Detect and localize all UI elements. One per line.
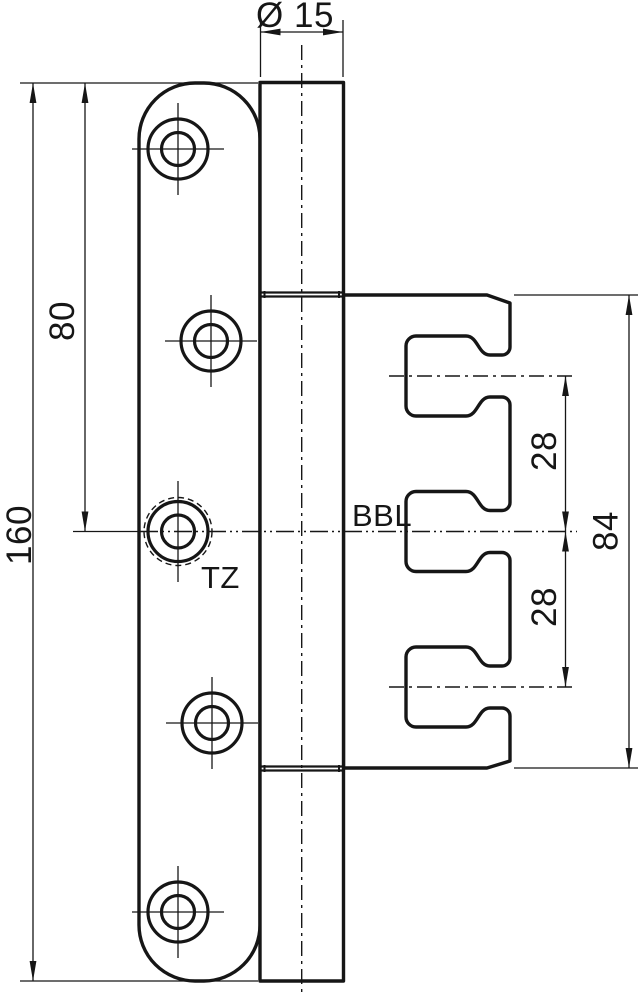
arrowhead-down [30, 961, 37, 981]
hinge-technical-drawing: Ø 15 160 80 28 28 84 [0, 0, 641, 1000]
dim-slot-spacing-lower-text: 28 [525, 587, 564, 627]
dim-frame-part-length-text: 84 [587, 511, 626, 551]
dimension-slot-spacing-upper: 28 [525, 376, 569, 532]
arrowhead-up [562, 532, 569, 552]
dim-leaf-length-text: 160 [0, 505, 39, 565]
dim-top-to-center-text: 80 [43, 301, 82, 341]
arrowhead-down [562, 667, 569, 687]
dim-pin-diameter-text: Ø 15 [256, 0, 334, 35]
arrowhead-down [562, 512, 569, 532]
dimension-pin-diameter: Ø 15 [256, 0, 343, 77]
arrowhead-up [562, 376, 569, 396]
dimension-top-to-center: 80 [43, 83, 88, 532]
arrowhead-up [30, 83, 37, 103]
drawing-svg: Ø 15 160 80 28 28 84 [0, 0, 641, 1000]
arrowhead-up [626, 295, 633, 315]
label-bbl: BBL [352, 498, 412, 533]
arrowhead-down [626, 748, 633, 768]
label-tz: TZ [201, 560, 240, 595]
dim-slot-spacing-upper-text: 28 [525, 431, 564, 471]
arrowhead-up [82, 83, 89, 103]
arrowhead-down [82, 512, 89, 532]
dimension-slot-spacing-lower: 28 [525, 532, 569, 688]
